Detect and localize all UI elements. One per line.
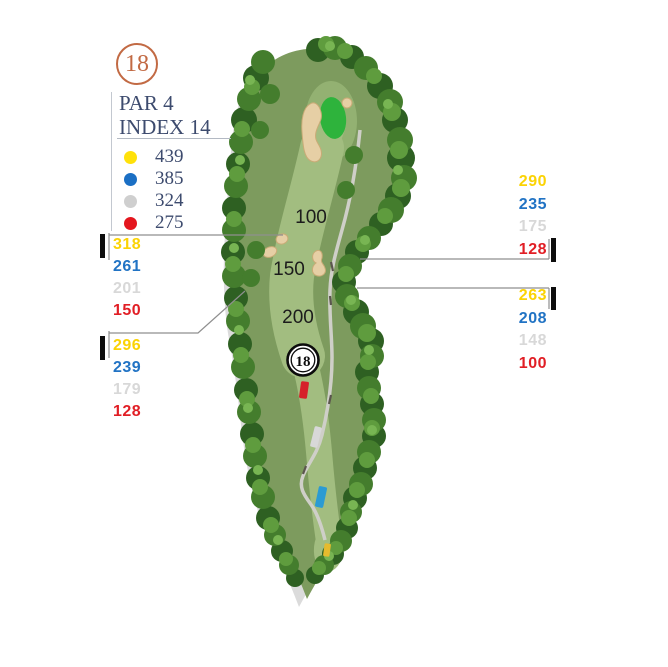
yardage-value-red: 150 [113,300,141,322]
legend-yards: 324 [155,190,184,212]
par-label: PAR 4 [119,91,174,116]
yellow-tee-dot-icon [124,151,137,164]
hole-map-artwork: 100 150 200 18 [0,0,668,667]
yardage-value-blue: 235 [487,194,547,217]
yardage-value-white: 201 [113,278,141,300]
legend-row-red: 275 [117,212,184,234]
index-label: INDEX 14 [119,115,211,140]
yardage-value-blue: 239 [113,357,141,379]
hole-marker-badge: 18 [288,345,319,376]
yardage-value-red: 128 [113,401,141,423]
yardage-value-blue: 261 [113,256,141,278]
legend-row-yellow: 439 [117,146,184,168]
yardage-value-white: 175 [487,216,547,239]
distance-marker-200: 200 [282,307,314,328]
index-underline [117,138,231,139]
hole-number: 18 [125,51,149,78]
legend-row-blue: 385 [117,168,184,190]
yardage-block-right-lower: 263 208 148 100 [487,285,547,375]
legend-left-rule [111,92,112,231]
greenside-bunker-right [342,98,352,108]
yardage-value-yellow: 290 [487,171,547,194]
white-tee-dot-icon [124,195,137,208]
blue-tee-dot-icon [124,173,137,186]
yardage-value-red: 100 [487,353,547,376]
golf-hole-yardage-map: 100 150 200 18 18 [0,0,668,667]
legend-yards: 275 [155,212,184,234]
legend-yards: 439 [155,146,184,168]
yardage-value-white: 148 [487,330,547,353]
yardage-value-yellow: 296 [113,335,141,357]
yardage-value-red: 128 [487,239,547,262]
legend-yards: 385 [155,168,184,190]
yardage-value-blue: 208 [487,308,547,331]
hole-marker-number: 18 [296,354,311,370]
yardage-value-yellow: 318 [113,234,141,256]
yardage-block-left-upper: 318 261 201 150 [113,234,141,322]
hole-number-badge: 18 [116,43,158,85]
yardage-value-yellow: 263 [487,285,547,308]
yardage-block-right-upper: 290 235 175 128 [487,171,547,261]
tee-legend: 439 385 324 275 [117,146,184,234]
distance-marker-100: 100 [295,207,327,228]
yardage-block-left-lower: 296 239 179 128 [113,335,141,423]
distance-marker-150: 150 [273,259,305,280]
legend-row-white: 324 [117,190,184,212]
red-tee-dot-icon [124,217,137,230]
yardage-value-white: 179 [113,379,141,401]
